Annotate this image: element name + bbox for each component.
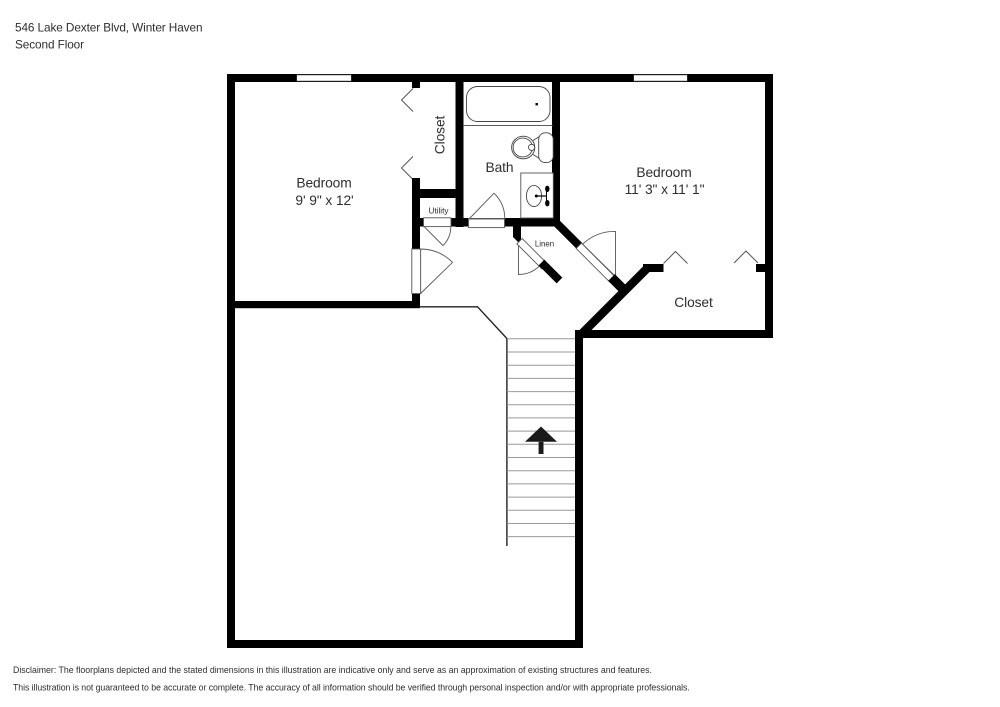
svg-text:Closet: Closet xyxy=(432,115,447,154)
svg-text:11' 3" x 11' 1": 11' 3" x 11' 1" xyxy=(625,182,705,197)
svg-text:Bedroom: Bedroom xyxy=(296,175,351,190)
svg-text:Closet: Closet xyxy=(674,295,713,310)
svg-text:Second Floor: Second Floor xyxy=(15,38,84,52)
svg-text:Linen: Linen xyxy=(535,239,554,248)
svg-text:9' 9" x 12': 9' 9" x 12' xyxy=(295,193,353,208)
svg-text:546 Lake Dexter Blvd, Winter H: 546 Lake Dexter Blvd, Winter Haven xyxy=(15,21,202,35)
svg-text:Bath: Bath xyxy=(486,160,514,175)
svg-text:Disclaimer: The floorplans dep: Disclaimer: The floorplans depicted and … xyxy=(13,665,652,675)
svg-text:This illustration is not guara: This illustration is not guaranteed to b… xyxy=(13,682,690,692)
svg-text:Bedroom: Bedroom xyxy=(636,165,691,180)
svg-text:Utility: Utility xyxy=(428,207,449,216)
